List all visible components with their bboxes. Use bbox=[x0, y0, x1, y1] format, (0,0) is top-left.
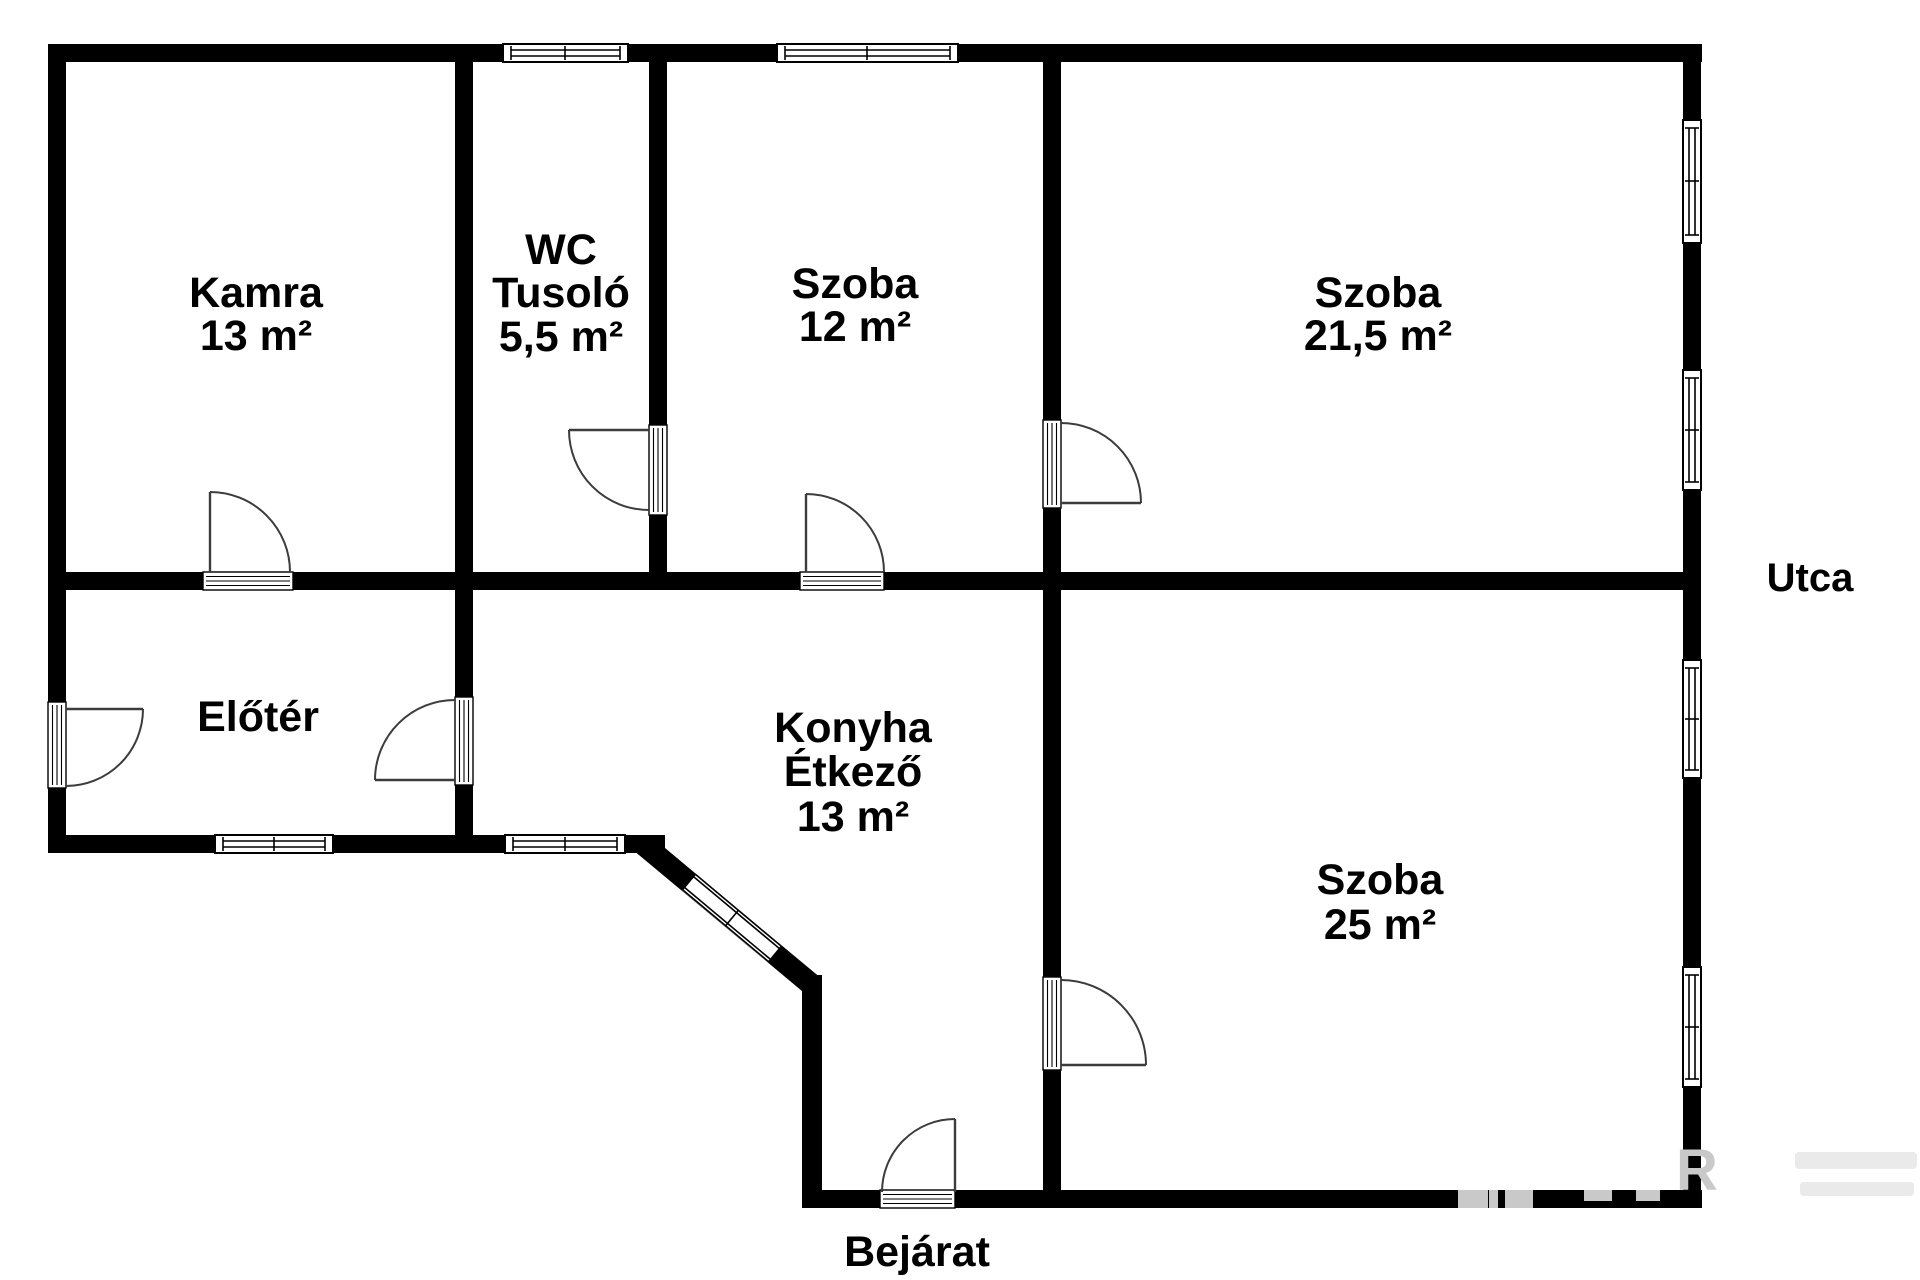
label-kamra-area: 13 m² bbox=[200, 312, 312, 360]
label-konyha-area: 13 m² bbox=[797, 793, 909, 841]
watermark-patch bbox=[1505, 1190, 1533, 1208]
watermark-patch bbox=[1636, 1190, 1660, 1201]
plan-background bbox=[0, 0, 1920, 1280]
wall-middle-seg3 bbox=[884, 572, 1701, 590]
label-entrance: Bejárat bbox=[844, 1228, 990, 1276]
wall-middle-seg2 bbox=[293, 572, 800, 590]
wall-c-seg2 bbox=[1043, 508, 1061, 590]
wall-entry-vertical bbox=[802, 975, 822, 1208]
wall-c-seg4 bbox=[1043, 1070, 1061, 1190]
wall-b-upper bbox=[649, 62, 667, 425]
label-eloter: Előtér bbox=[197, 693, 319, 741]
wall-c-seg1 bbox=[1043, 62, 1061, 420]
window-top-szoba12 bbox=[777, 44, 958, 62]
wall-a-upper bbox=[455, 62, 473, 572]
wall-right-seg2 bbox=[1683, 243, 1701, 370]
wall-top-kamra bbox=[48, 44, 505, 62]
label-szoba12-name: Szoba bbox=[792, 260, 920, 308]
wall-bottom-eloter-seg1 bbox=[48, 835, 215, 853]
wall-b-lower bbox=[649, 515, 667, 590]
wall-right-seg4 bbox=[1683, 778, 1701, 967]
label-szoba12-area: 12 m² bbox=[799, 303, 911, 351]
label-wc-line1: WC bbox=[525, 226, 597, 274]
label-szoba215-name: Szoba bbox=[1315, 269, 1443, 317]
wall-top-szoba215 bbox=[958, 44, 1702, 62]
window-bottom-konyha bbox=[505, 835, 625, 853]
wall-a-mid bbox=[455, 590, 473, 697]
label-szoba25-name: Szoba bbox=[1317, 856, 1445, 904]
watermark-patch bbox=[1584, 1190, 1612, 1201]
wall-top-mid bbox=[628, 44, 777, 62]
label-wc-area: 5,5 m² bbox=[499, 313, 623, 361]
window-top-wc bbox=[503, 44, 628, 62]
watermark-faint-line bbox=[1800, 1182, 1914, 1196]
window-right-4 bbox=[1683, 967, 1701, 1087]
watermark-patch bbox=[1489, 1190, 1498, 1208]
wall-bottom-entry-left bbox=[802, 1190, 880, 1208]
label-szoba215-area: 21,5 m² bbox=[1304, 312, 1452, 360]
label-kamra-name: Kamra bbox=[189, 269, 324, 317]
label-konyha-line2: Étkező bbox=[784, 748, 923, 796]
watermark-patch bbox=[1458, 1190, 1488, 1208]
window-right-2 bbox=[1683, 370, 1701, 490]
wall-bottom-eloter-seg2 bbox=[333, 835, 505, 853]
wall-c-seg3 bbox=[1043, 590, 1061, 977]
window-right-3 bbox=[1683, 660, 1701, 778]
label-street: Utca bbox=[1767, 556, 1854, 600]
window-bottom-eloter bbox=[215, 835, 333, 853]
label-szoba25-area: 25 m² bbox=[1324, 901, 1436, 949]
floor-plan: Kamra 13 m² WC Tusoló 5,5 m² Szoba 12 m²… bbox=[0, 0, 1920, 1280]
watermark-faint-line bbox=[1795, 1152, 1917, 1169]
wall-middle-seg1 bbox=[48, 572, 203, 590]
label-konyha-line1: Konyha bbox=[774, 704, 933, 752]
label-wc-line2: Tusoló bbox=[492, 269, 630, 317]
watermark-corner-letter: R bbox=[1676, 1138, 1718, 1203]
wall-right-seg1 bbox=[1683, 44, 1701, 120]
window-right-1 bbox=[1683, 120, 1701, 243]
wall-left-upper bbox=[48, 44, 66, 702]
